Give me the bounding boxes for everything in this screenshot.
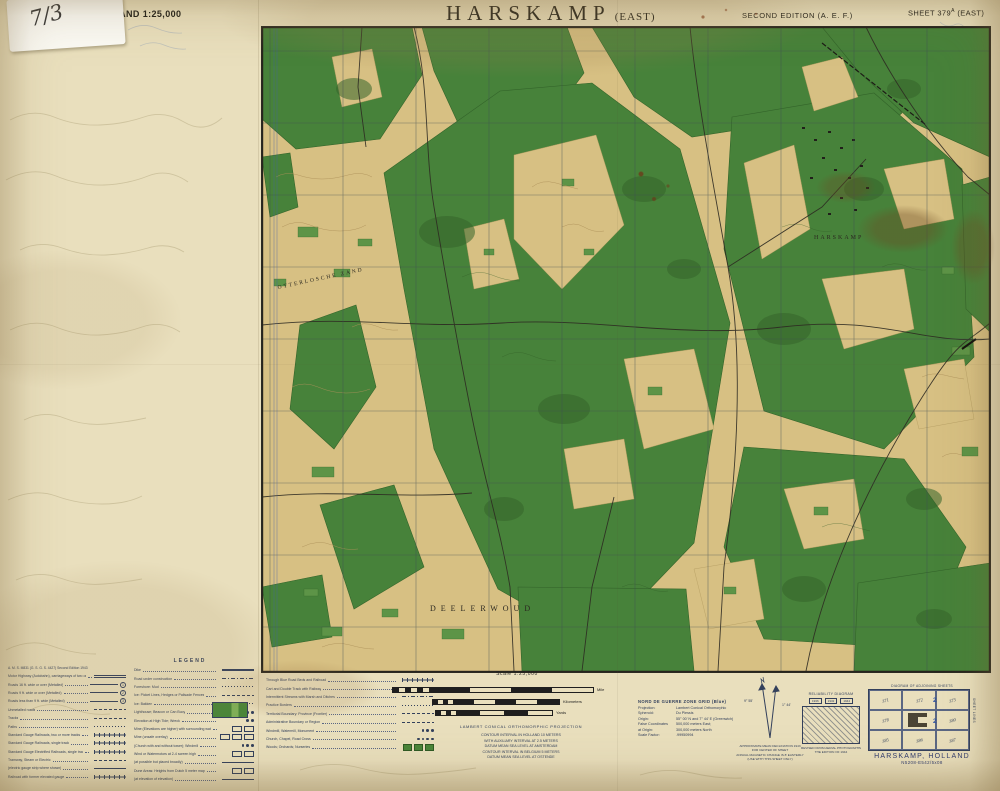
legend-title: LEGEND [130,658,250,664]
declination-caption-line: (USE WITH THIS SHEET ONLY) [722,757,818,761]
legend-item: (at elevation of elevation) [134,775,254,783]
sheet-title-name: HARSKAMP [446,1,611,25]
legend-item: Road under construction [134,674,254,682]
legend-item: Administrative Boundary or Region [266,718,434,726]
index-cell-current-sheet: 379 [902,710,935,730]
contour-note-line: DATUM MEAN SEA LEVEL AT OSTENDE [426,755,616,761]
province-boundary-symbol [402,713,434,714]
approx-position-symbol [222,762,254,763]
gauge-strip-symbol [94,768,126,769]
legend-item: (Church with and without tower); Windmil… [134,742,254,750]
wreck-symbol [246,719,254,722]
handwritten-sticker: 7/3 [6,0,125,52]
reliability-source-boxes: 1936 1932 1944 [796,698,866,704]
scale-bar-yards-label: Yards [556,710,566,715]
declination-right-value: 1° 44' [782,703,791,707]
legend-series-note: A. M. S. M831 (G. S. G. S. 4427) Second … [8,666,126,670]
railroad-electrified-symbol [94,750,126,754]
legend-item: Windmill, Watermill, Monument [266,726,434,734]
scale-bar-yards: Yards [435,710,566,716]
sheet-number: SHEET 379 [908,9,951,18]
sheet-title: HARSKAMP (EAST) [446,1,656,26]
legend-item: Standard Gauge Railroads, two or more tr… [8,731,126,739]
scale-bar-mile-label: Mile [597,687,604,692]
tramway-symbol [94,760,126,761]
scale-bar-kilometers-label: Kilometers [563,699,582,704]
region-boundary-symbol [402,722,434,723]
index-pencil-mark: 2 [933,697,937,704]
intermittent-stream-symbol [402,696,434,697]
legend-item: Mine (unsafe overlay) [134,733,254,741]
fold-crease [258,0,259,791]
legend-item: Woods; Orchards; Nurseries [266,743,434,751]
legend-item: Mine (Elevations are higher) with surrou… [134,725,254,733]
hedge-fence-symbol [222,695,254,696]
legend-item: Tracks [8,714,126,722]
windmotor-symbol [232,751,254,757]
reliability-hatched-square [802,706,860,744]
path-symbol [94,726,126,727]
declination-left-value: 9° 55' [744,699,753,703]
projection-note: LAMBERT CONICAL ORTHOMORPHIC PROJECTION [426,724,616,729]
dike-symbol [222,669,254,671]
legend-right-column: Dike Road under construction Foreshore: … [134,666,254,783]
edition-label: SECOND EDITION (A. E. F.) [742,11,853,20]
legend-item: Church, Chapel, Road Cross [266,735,434,743]
scale-bar-mile: Mile [392,687,604,693]
legend-item: Territorial Boundary: Province (Frontier… [266,710,434,718]
legend-item: Paths [8,722,126,730]
reliability-caption-line: THE EDITION OF 1944 [796,750,866,754]
legend-left-column: A. M. S. M831 (G. S. G. S. 4427) Second … [8,666,126,781]
index-pencil-mark: 2 [933,718,937,725]
map-artwork: DEELERWOUD OTTERLOSCHE ZAND HARSKAMP [262,27,990,672]
grid-reference-info: NORD DE GUERRE ZONE GRID (Blue) Projecti… [638,699,756,738]
index-cell: 372 [902,690,935,710]
legend-panel: LEGEND A. M. S. M831 (G. S. G. S. 4427) … [6,658,256,790]
scale-bar-kilometers: Kilometers [432,699,582,705]
reliability-box: 1932 [825,698,838,704]
reliability-diagram: RELIABILITY DIAGRAM 1936 1932 1944 REVIS… [796,692,866,755]
legend-item: Unmetalled roads [8,706,126,714]
scale-label: Scale 1:25,000 [452,671,582,677]
legend-item: (electric gauge strip where shown) [8,764,126,772]
autobahn-symbol [94,675,126,678]
legend-item: Intermittent Streams with Marsh and Ditc… [266,693,434,701]
legend-item: Roads 9 ft. wide or over (Metalled)2 [8,689,126,697]
index-cell: 386 [902,730,935,750]
mine-overlay-symbol [220,734,254,740]
sheet-title-suffix: (EAST) [615,11,656,23]
former-gauge-symbol [94,775,126,779]
legend-item: Through Blue Road Beds and Railroad [266,676,434,684]
sheet-number-sup: A [951,8,955,14]
index-cell: 371 [869,690,902,710]
index-cell: 387 [936,730,969,750]
practice-border-symbol [402,705,434,706]
railroad-single-track-symbol [94,741,126,745]
map-label-deelerwoud: DEELERWOUD [430,604,535,613]
foreshore-mud-symbol [222,686,254,687]
windmill-monument-symbol [422,729,434,732]
index-cell: 373 [936,690,969,710]
unmetalled-road-symbol [94,709,126,710]
grid-info-title: NORD DE GUERRE ZONE GRID (Blue) [638,699,756,704]
legend-item: Standard Gauge Railroads, single track [8,739,126,747]
road-under-construction-symbol [222,678,254,679]
scanned-map-sheet: { "page": { "series_label": "HOLLAND 1:2… [0,0,1000,791]
legend-item: Dune Areas: Heights from Dutch 5 meter m… [134,767,254,775]
map-face: DEELERWOUD OTTERLOSCHE ZAND HARSKAMP [262,27,990,672]
road-class-3-symbol: 3 [120,698,126,704]
legend-item: Railroad with former elevated gauge [8,773,126,781]
legend-item: Wind or Watermotors at 2-4 screen high [134,750,254,758]
grid-info-row: Scale Factor:.99950994 [638,733,756,738]
road-class-1-symbol: 1 [120,682,126,688]
road-bed-railroad-symbol [402,678,434,682]
legend-item: Roads less than 9 ft. wide (Metalled)3 [8,697,126,705]
footer-reference-code: N5208-E542/5x08 [860,760,984,765]
track-symbol [94,718,126,719]
adjoining-sheets-index: DIAGRAM OF ADJOINING SHEETS 371 372 373 … [868,684,976,751]
index-cell: 380 [936,710,969,730]
legend-item: (at possible but placed broadly) [134,758,254,766]
legend-item: Dike [134,666,254,674]
index-cell: 378 [869,710,902,730]
road-class-2-symbol: 2 [120,690,126,696]
legend-item: Ice: Picket Lines, Hedges or Palisade Fe… [134,691,254,699]
index-grid: 371 372 373 378 379 380 385 386 387 2 2 … [868,689,970,751]
contour-interval-notes: CONTOUR INTERVAL IN HOLLAND 10 METERS WI… [426,733,616,761]
legend-item: Roads 16 ft. wide or over (Metalled)1 [8,680,126,688]
woods-sample-swatch [212,702,248,718]
legend-item: Tramway, Steam or Electric [8,756,126,764]
railroad-two-track-symbol [94,733,126,737]
elevation-symbol [222,779,254,780]
sticker-note: 7/3 [27,0,66,31]
index-title: DIAGRAM OF ADJOINING SHEETS [868,684,976,688]
declination-diagram: 9° 55' 1° 44' [740,676,800,747]
legend-item: Motor Highway (Autobahn), carriageways o… [8,672,126,680]
sheet-number-suffix: (EAST) [957,9,984,18]
sheet-footer: HARSKAMP, HOLLAND N5208-E542/5x08 [860,753,984,765]
index-side-label: SHEET LINES [972,698,976,723]
legend-item: Standard Gauge Electrified Railroads, si… [8,748,126,756]
legend-item: Foreshore: Mud [134,683,254,691]
reliability-title: RELIABILITY DIAGRAM [796,692,866,696]
dune-heights-symbol [232,768,254,774]
legend-item: Practice Borders [266,701,434,709]
reliability-box: 1936 [809,698,822,704]
church-windmill-symbol [242,744,254,747]
index-cell: 385 [869,730,902,750]
footer-title: HARSKAMP, HOLLAND [860,753,984,760]
sheet-number-label: SHEET 379A (EAST) [908,8,984,18]
mine-water-symbol [232,726,254,732]
map-label-harskamp: HARSKAMP [814,235,863,241]
reliability-box: 1944 [840,698,853,704]
